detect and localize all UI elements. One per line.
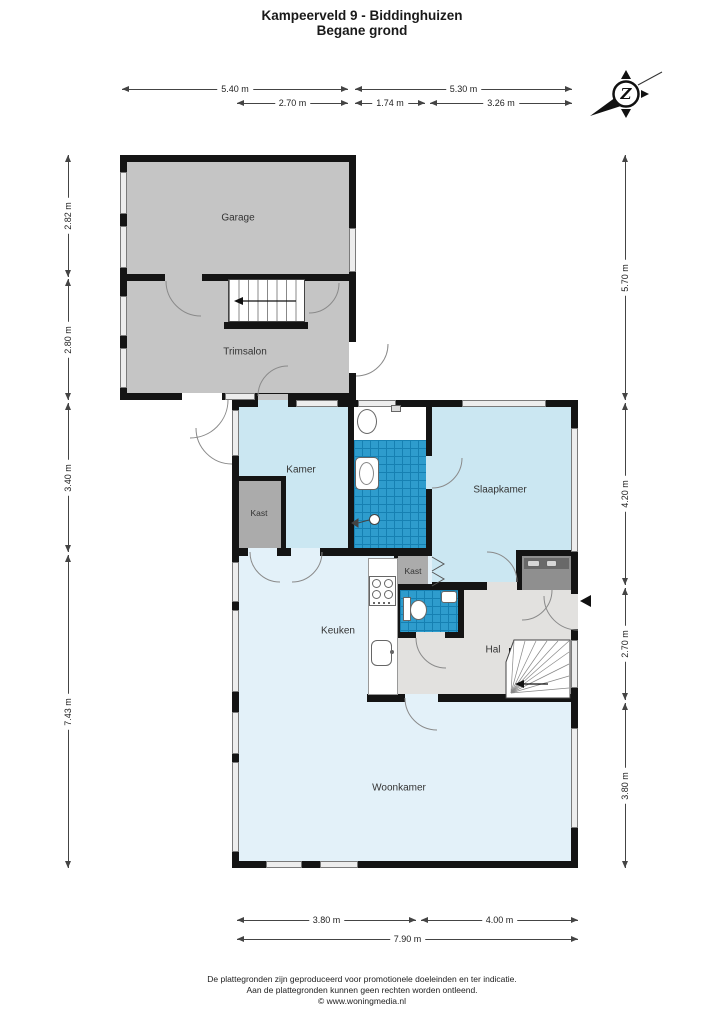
door-opening-trimsalon-exterior: [349, 342, 356, 373]
stove-burner: [372, 579, 381, 588]
dim-label: 4.00 m: [482, 915, 518, 925]
window-woonkamer-west: [232, 712, 239, 754]
vanity-basin: [527, 560, 540, 567]
wall-nook-top: [516, 550, 571, 556]
door-opening-toilet: [416, 632, 445, 638]
stove-burner: [384, 590, 393, 599]
kitchen-faucet: [390, 650, 394, 654]
window-keuken-west: [232, 562, 239, 602]
dim-top-2-70: 2.70 m: [237, 103, 348, 104]
bathroom-toilet-bowl: [359, 462, 374, 485]
footer-copyright: © www.woningmedia.nl: [0, 996, 724, 1007]
window-kamer-north: [296, 400, 338, 407]
staircase-trimsalon: [228, 279, 305, 322]
window-trimsalon-west-2: [120, 348, 127, 388]
compass-letter: Z: [620, 85, 633, 103]
window-woonkamer-west-2: [232, 762, 239, 852]
door-arc: [190, 400, 228, 438]
label-kast-kamer: Kast: [250, 508, 267, 518]
dim-label: 5.70 m: [620, 260, 630, 296]
label-slaapkamer: Slaapkamer: [473, 485, 526, 496]
window-garage-east: [349, 228, 356, 272]
door-opening-badkamer: [426, 456, 432, 489]
dim-label: 7.43 m: [63, 694, 73, 730]
window-trimsalon-south: [225, 393, 255, 400]
window-slaapkamer-east: [571, 428, 578, 552]
dim-top-5-30: 5.30 m: [355, 89, 572, 90]
room-hal-extension: [398, 638, 464, 698]
dim-label: 3.80 m: [620, 768, 630, 804]
dim-label: 3.80 m: [309, 915, 345, 925]
compass-east-tick: [641, 90, 649, 98]
dim-bottom-3-80: 3.80 m: [237, 920, 416, 921]
label-garage: Garage: [221, 213, 254, 224]
stove-burner: [372, 590, 381, 599]
dim-right-5-70: 5.70 m: [625, 155, 626, 400]
entrance-arrow: [580, 595, 591, 607]
door-opening-woonkamer: [405, 694, 438, 702]
dim-left-7-43: 7.43 m: [68, 555, 69, 868]
dim-label: 2.80 m: [63, 322, 73, 358]
door-opening-front-entrance: [571, 594, 578, 629]
door-opening-kamer-keuken-2: [291, 548, 320, 556]
compass-south-tick: [621, 109, 631, 118]
door-opening-garage: [165, 274, 202, 281]
door-opening-kamer-keuken: [248, 548, 277, 556]
door-opening-trimsalon-kamer: [258, 400, 288, 407]
dim-top-3-26: 3.26 m: [430, 103, 572, 104]
dim-label: 5.40 m: [217, 84, 253, 94]
compass-north-tick: [621, 70, 631, 79]
dim-label: 7.90 m: [390, 934, 426, 944]
label-woonkamer: Woonkamer: [372, 783, 426, 794]
wall-kast-top: [239, 476, 286, 481]
door-opening-slaapkamer: [487, 582, 517, 590]
dim-left-2-82: 2.82 m: [68, 155, 69, 277]
shower-head: [369, 514, 380, 525]
kitchen-sink: [371, 640, 392, 666]
compass-needle-line: [638, 72, 662, 85]
footer-disclaimer-1: De plattegronden zijn geproduceerd voor …: [0, 974, 724, 985]
window-woonkamer-east: [571, 728, 578, 828]
window-trimsalon-west: [120, 296, 127, 336]
label-kast-hal: Kast: [404, 566, 421, 576]
dim-label: 3.26 m: [483, 98, 519, 108]
dim-top-1-74: 1.74 m: [355, 103, 425, 104]
wc-washbasin: [441, 591, 457, 603]
window-woonkamer-south: [266, 861, 302, 868]
window-woonkamer-south-2: [320, 861, 358, 868]
label-kamer: Kamer: [286, 465, 315, 476]
door-opening-trimsalon-south: [182, 393, 222, 400]
door-arc: [356, 344, 388, 376]
stove-burner: [384, 579, 393, 588]
label-trimsalon: Trimsalon: [223, 347, 267, 358]
wc-bowl: [410, 600, 427, 620]
dim-right-4-20: 4.20 m: [625, 403, 626, 585]
page-subtitle: Begane grond: [0, 23, 724, 38]
dim-label: 2.70 m: [620, 626, 630, 662]
page-title: Kampeerveld 9 - Biddinghuizen: [0, 8, 724, 23]
dim-label: 4.20 m: [620, 476, 630, 512]
door-arc: [196, 428, 232, 464]
wall-kast-right: [281, 476, 286, 552]
dim-label: 2.82 m: [63, 198, 73, 234]
room-hal: [464, 590, 571, 698]
vanity-basin: [546, 560, 557, 567]
washbasin: [357, 409, 377, 434]
staircase-trimsalon-wall: [224, 322, 308, 329]
footer-disclaimer-2: Aan de plattegronden kunnen geen rechten…: [0, 985, 724, 996]
washbasin-faucet: [391, 405, 401, 412]
dim-bottom-4-00: 4.00 m: [421, 920, 578, 921]
window-garage-west-2: [120, 226, 127, 268]
dim-label: 2.70 m: [275, 98, 311, 108]
wall-stair-newel: [509, 648, 524, 662]
window-kamer-west: [232, 410, 239, 456]
window-garage-west: [120, 172, 127, 214]
floorplan-page: Kampeerveld 9 - Biddinghuizen Begane gro…: [0, 0, 724, 1024]
dim-right-2-70: 2.70 m: [625, 588, 626, 700]
dim-label: 5.30 m: [446, 84, 482, 94]
dim-top-5-40: 5.40 m: [122, 89, 348, 90]
stove-knobs: [373, 602, 392, 604]
wall-toilet-right: [458, 590, 464, 638]
dim-bottom-7-90: 7.90 m: [237, 939, 578, 940]
wall-kamer-badkamer: [348, 407, 354, 548]
wall-hal-woonkamer: [367, 694, 571, 702]
window-keuken-west-2: [232, 610, 239, 692]
wall-toilet-top: [394, 584, 464, 590]
dim-left-2-80: 2.80 m: [68, 279, 69, 400]
dim-label: 3.40 m: [63, 460, 73, 496]
window-slaapkamer-north: [462, 400, 546, 407]
dim-right-3-80: 3.80 m: [625, 703, 626, 868]
window-hal-east: [571, 640, 578, 688]
dim-left-3-40: 3.40 m: [68, 403, 69, 552]
label-keuken: Keuken: [321, 626, 355, 637]
label-hal: Hal: [485, 645, 500, 656]
dim-label: 1.74 m: [372, 98, 408, 108]
compass-rose: Z: [588, 64, 664, 128]
